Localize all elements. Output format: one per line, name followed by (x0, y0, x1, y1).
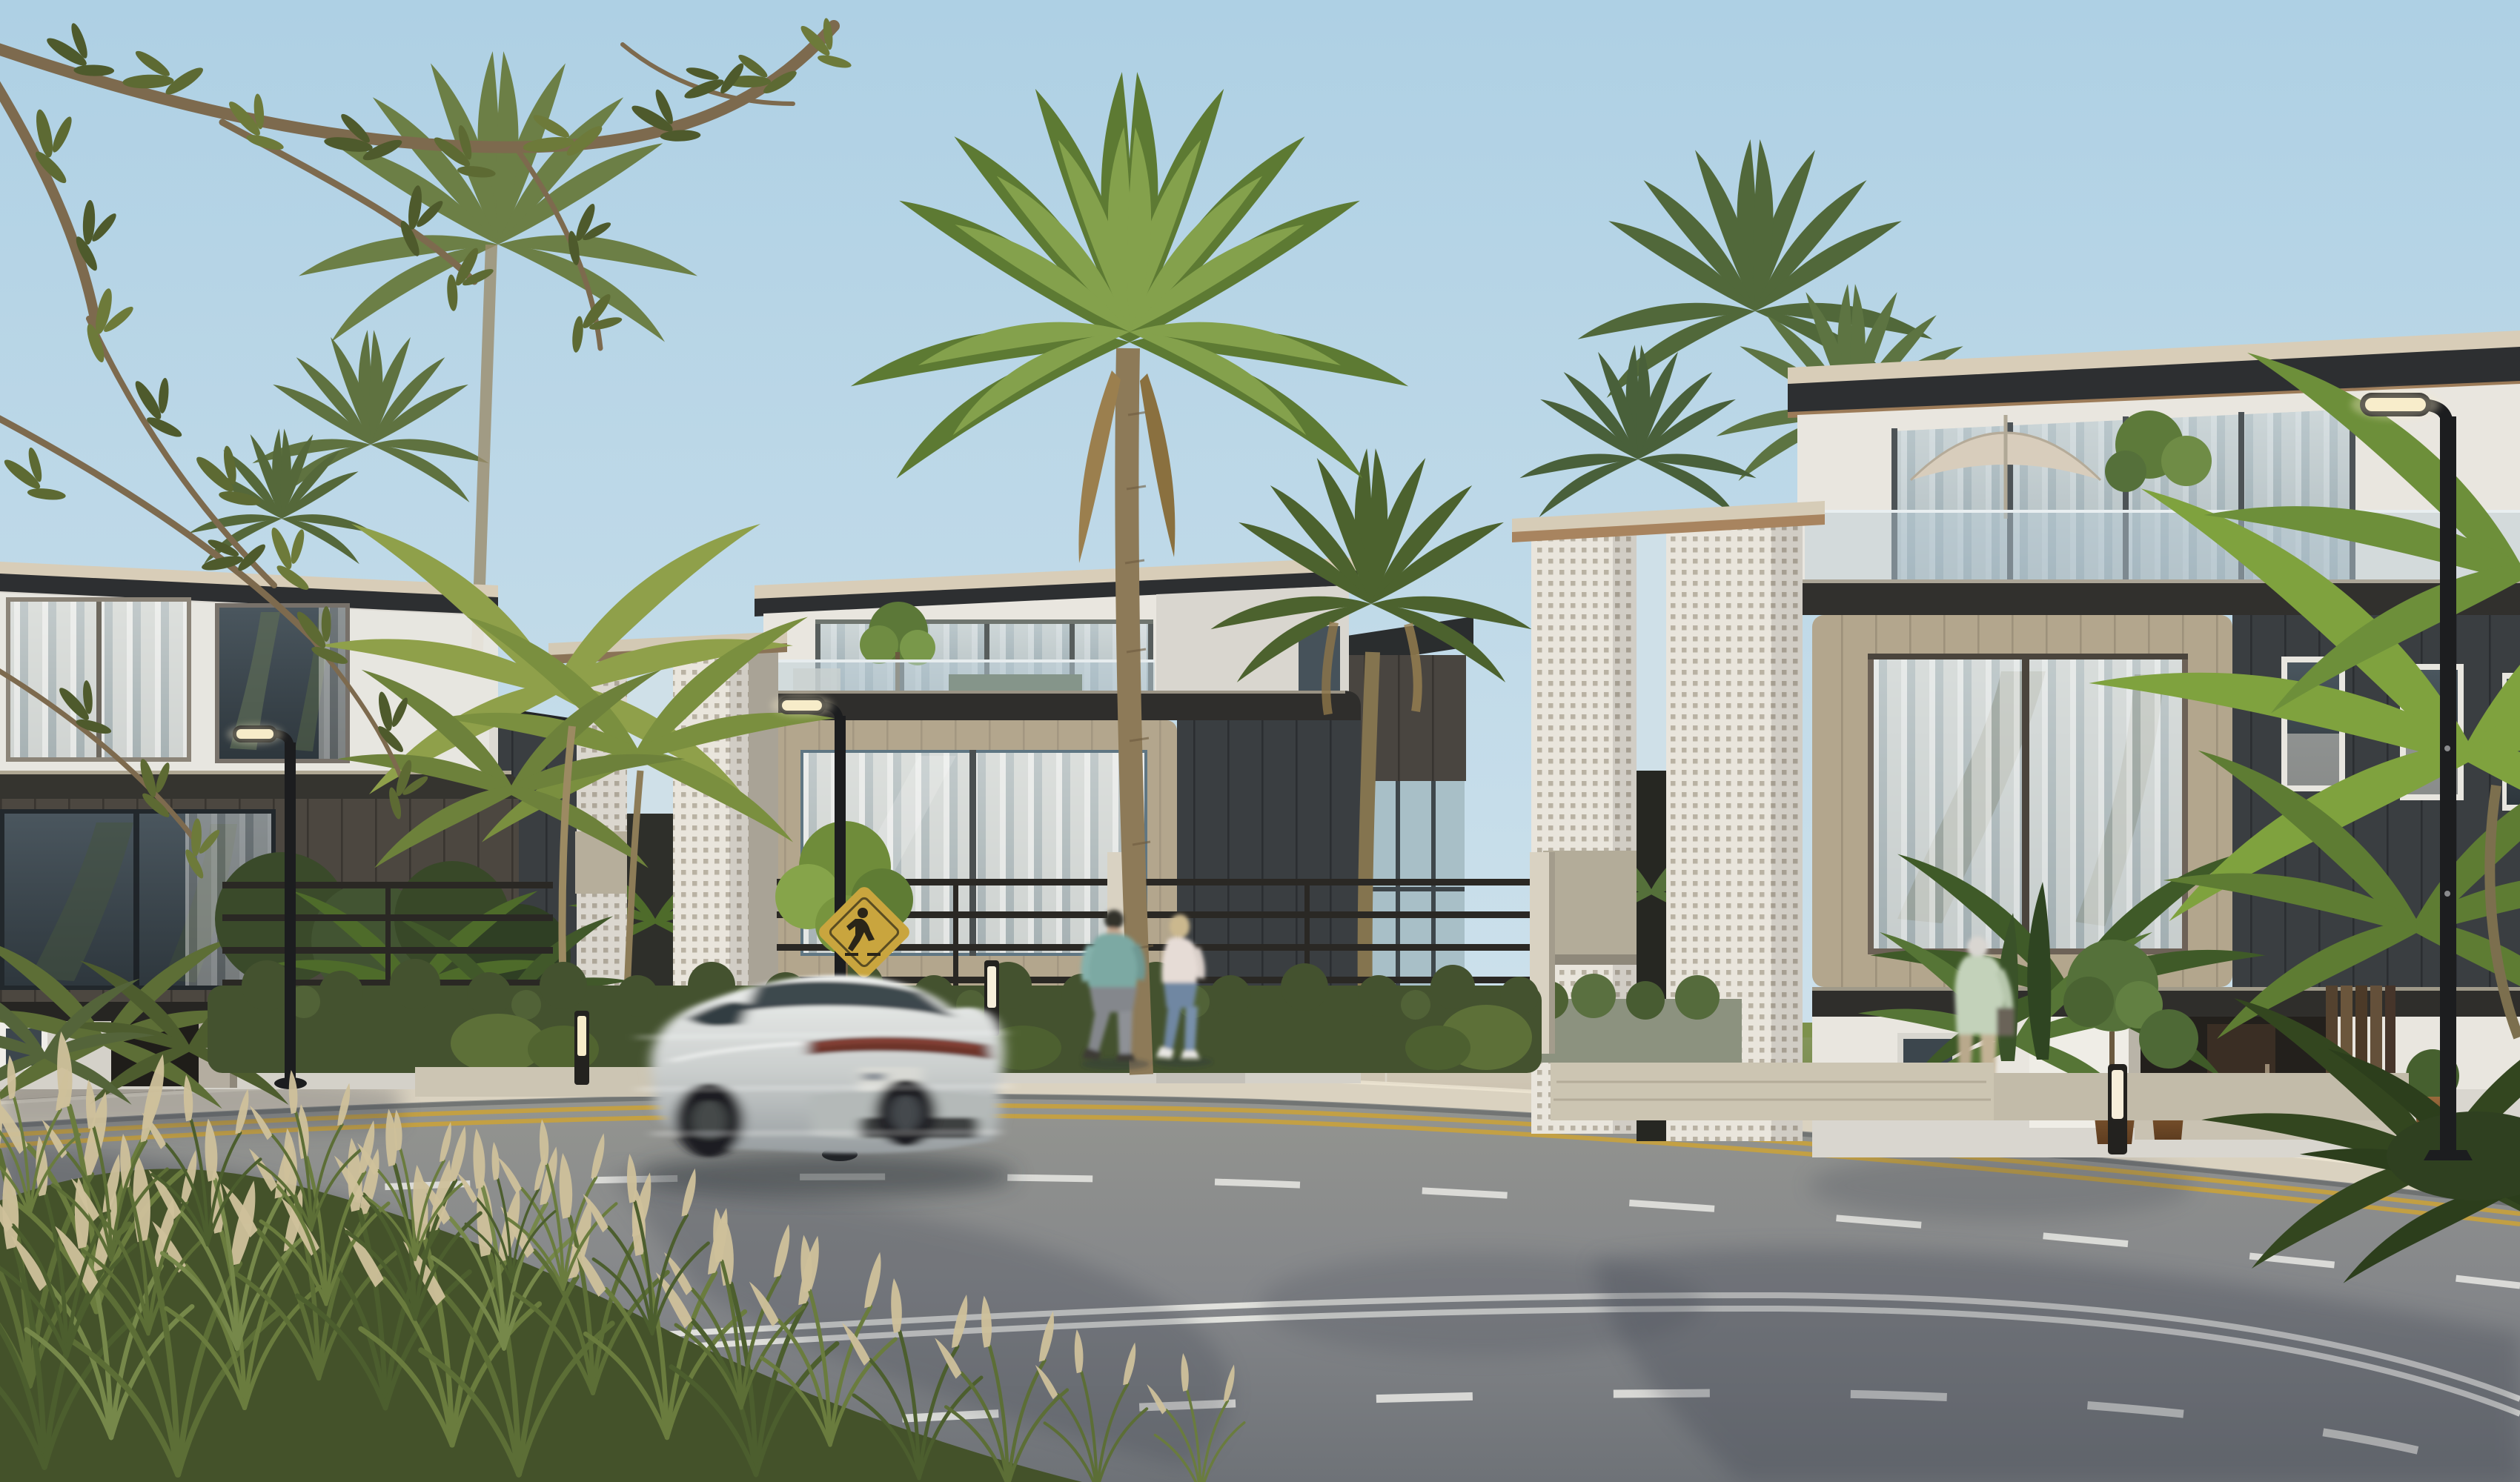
scene-canvas (0, 0, 2520, 1482)
villa-right-breeze-towers (1512, 501, 1825, 1141)
bollard-1 (574, 1011, 589, 1085)
bollard-3 (2108, 1064, 2127, 1154)
path-left (415, 1067, 689, 1097)
silver-sedan (637, 975, 1015, 1197)
architectural-rendering: Photorealistic architectural rendering o… (0, 0, 2520, 1482)
villa-left-window-a (6, 597, 191, 762)
